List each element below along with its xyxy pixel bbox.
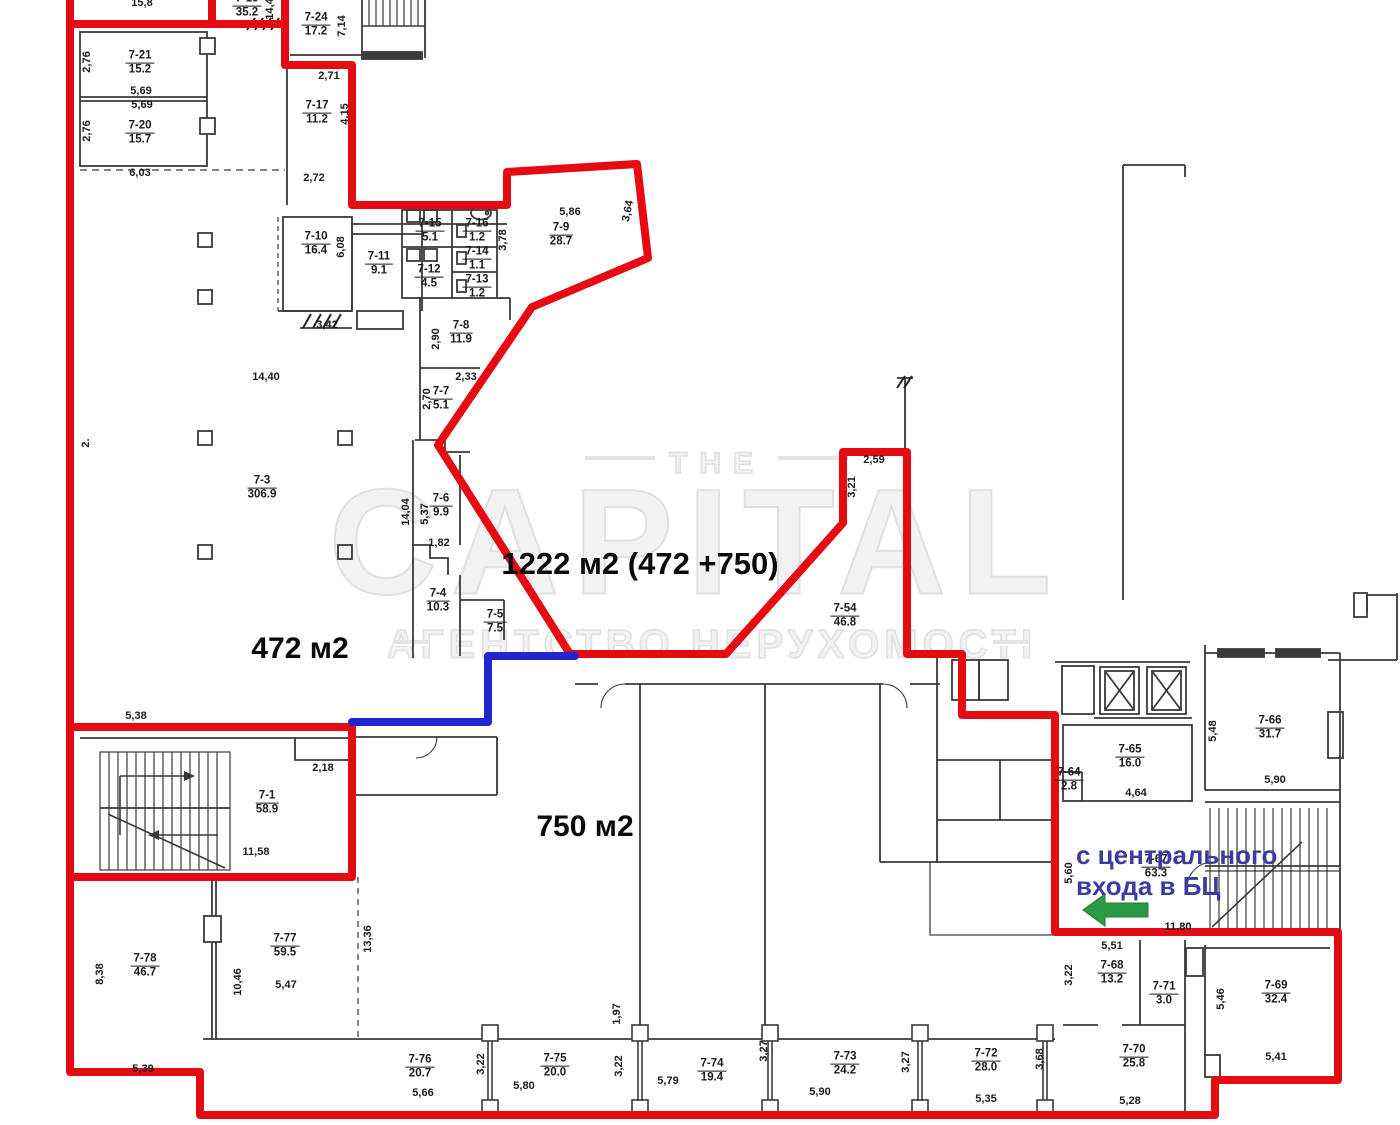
dimension-label: 13,36 xyxy=(362,925,374,953)
room-label-7-16: 7-161.2 xyxy=(462,218,491,245)
dimension-label: 7,14 xyxy=(336,15,348,36)
dimension-label: 2,76 xyxy=(81,120,93,141)
left-area-label: 472 м2 xyxy=(251,632,348,666)
room-label-7-68: 7-6813.2 xyxy=(1097,960,1126,987)
dimension-label: 1,97 xyxy=(611,1003,623,1024)
dimension-label: 4,64 xyxy=(1125,787,1146,799)
room-label-7-1: 7-158.9 xyxy=(256,790,279,817)
dimension-label: 2,18 xyxy=(312,762,333,774)
room-label-7-3: 7-3306.9 xyxy=(248,475,277,502)
dimension-label: 5,86 xyxy=(559,206,580,218)
dimension-label: 3,22 xyxy=(475,1053,487,1074)
dimension-label: 14,04 xyxy=(400,498,412,526)
floor-plan-canvas: THE CAPITAL АГЕНТСТВО НЕРУХОМОСТІ xyxy=(0,0,1400,1125)
dimension-label: 5,28 xyxy=(1119,1095,1140,1107)
room-label-7-15: 7-155.1 xyxy=(415,218,444,245)
dimension-label: 5,51 xyxy=(1101,940,1122,952)
dimension-label: 11,80 xyxy=(1165,921,1192,933)
dimension-label: 5,48 xyxy=(1207,720,1219,741)
stairs-main-left xyxy=(100,752,230,870)
room-label-7-73: 7-7324.2 xyxy=(830,1051,859,1078)
dimension-label: 5,46 xyxy=(1215,988,1227,1009)
room-label-7-17: 7-1711.2 xyxy=(302,100,331,127)
door-hatch xyxy=(247,18,912,388)
dimension-label: 5,90 xyxy=(809,1086,830,1098)
dimension-label: 1,82 xyxy=(428,537,449,549)
dimension-label: 5,41 xyxy=(1265,1051,1286,1063)
dimension-label: 3,78 xyxy=(497,229,509,250)
dimension-label: 2,59 xyxy=(863,454,884,466)
room-label-7-4: 7-410.3 xyxy=(427,588,450,615)
dimension-label: 2,72 xyxy=(303,172,324,184)
dimension-label: 10,46 xyxy=(232,968,244,996)
dimension-label: 11,58 xyxy=(243,846,270,858)
dimension-label: 3,27 xyxy=(900,1051,912,1072)
room-label-7-74: 7-7419.4 xyxy=(697,1058,726,1085)
room-label-7-13: 7-131.2 xyxy=(462,274,491,301)
dimension-label: 5,47 xyxy=(275,979,296,991)
room-label-7-72: 7-7228.0 xyxy=(971,1048,1000,1075)
room-label-7-7: 7-75.1 xyxy=(430,386,453,413)
room-label-7-8: 7-811.9 xyxy=(450,320,473,347)
room-label-7-78: 7-7846.7 xyxy=(130,953,159,980)
room-label-7-5: 7-57.5 xyxy=(484,609,507,636)
total-area-label: 1222 м2 (472 +750) xyxy=(501,546,778,582)
dimension-label: 2,90 xyxy=(430,328,442,349)
room-label-7-14: 7-141.1 xyxy=(462,246,491,273)
bottom-area-label: 750 м2 xyxy=(536,810,633,844)
room-label-7-19: 7-1935.2 xyxy=(232,0,261,19)
dimension-label: 5,79 xyxy=(657,1075,678,1087)
room-label-7-70: 7-7025.8 xyxy=(1119,1044,1148,1071)
dimension-label: 5,80 xyxy=(513,1080,534,1092)
stairs-top xyxy=(362,0,425,26)
room-label-7-69: 7-6932.4 xyxy=(1261,980,1290,1007)
dimension-label: 3,22 xyxy=(613,1055,625,1076)
room-label-7-54: 7-5446.8 xyxy=(830,603,859,630)
dimension-label: 4,15 xyxy=(339,103,351,124)
dimension-label: 5,69 xyxy=(130,85,151,97)
dimension-label: 3,27 xyxy=(758,1040,770,1061)
dimension-label: 14,4 xyxy=(264,0,276,20)
dimension-label: 5,66 xyxy=(412,1087,433,1099)
room-label-7-65: 7-6516.0 xyxy=(1115,744,1144,771)
dimension-label: 14,40 xyxy=(252,371,280,383)
entrance-note: с центрального входа в БЦ xyxy=(1076,840,1277,902)
room-label-7-71: 7-713.0 xyxy=(1149,981,1178,1008)
dimension-label: 2,71 xyxy=(318,70,339,82)
room-label-7-10: 7-1016.4 xyxy=(301,231,330,258)
room-label-7-75: 7-7520.0 xyxy=(540,1053,569,1080)
room-label-7-64: 7-642.8 xyxy=(1054,767,1083,794)
room-label-7-76: 7-7620.7 xyxy=(405,1054,434,1081)
dimension-label: 3,68 xyxy=(1034,1048,1046,1069)
entrance-note-line2: входа в БЦ xyxy=(1076,871,1277,902)
room-label-7-77: 7-7759.5 xyxy=(270,933,299,960)
room-label-7-66: 7-6631.7 xyxy=(1255,715,1284,742)
room-label-7-12: 7-124.5 xyxy=(414,264,443,291)
room-label-7-21: 7-2115.2 xyxy=(125,50,154,77)
dimension-label: 5,35 xyxy=(975,1093,996,1105)
dimension-label: 5,90 xyxy=(1264,774,1285,786)
dimension-label: 6,08 xyxy=(335,236,347,257)
dimension-label: 3,21 xyxy=(846,476,858,497)
dimension-label: 5,38 xyxy=(125,710,146,722)
dimension-label: 2,33 xyxy=(455,371,476,383)
dimension-label: 2,76 xyxy=(81,51,93,72)
dimension-label: 5,39 xyxy=(132,1063,153,1075)
entrance-note-line1: с центрального xyxy=(1076,840,1277,871)
dimension-label: 3,42 xyxy=(316,319,337,331)
room-label-7-9: 7-928.7 xyxy=(550,222,573,249)
dimension-label: 5,60 xyxy=(1063,862,1075,883)
dimension-label: 15,8 xyxy=(131,0,152,9)
room-label-7-6: 7-69.9 xyxy=(430,493,453,520)
dimension-label: 8,38 xyxy=(94,963,106,984)
room-label-7-20: 7-2015.7 xyxy=(125,120,154,147)
dimension-label: 5,69 xyxy=(131,99,152,111)
dimension-label: 6,03 xyxy=(129,167,150,179)
dimension-label: 3,22 xyxy=(1063,964,1075,985)
dimension-label: 2. xyxy=(80,438,92,447)
room-label-7-24: 7-2417.2 xyxy=(301,12,330,39)
room-label-7-11: 7-119.1 xyxy=(365,251,393,278)
blue-divider-segment xyxy=(352,656,575,722)
